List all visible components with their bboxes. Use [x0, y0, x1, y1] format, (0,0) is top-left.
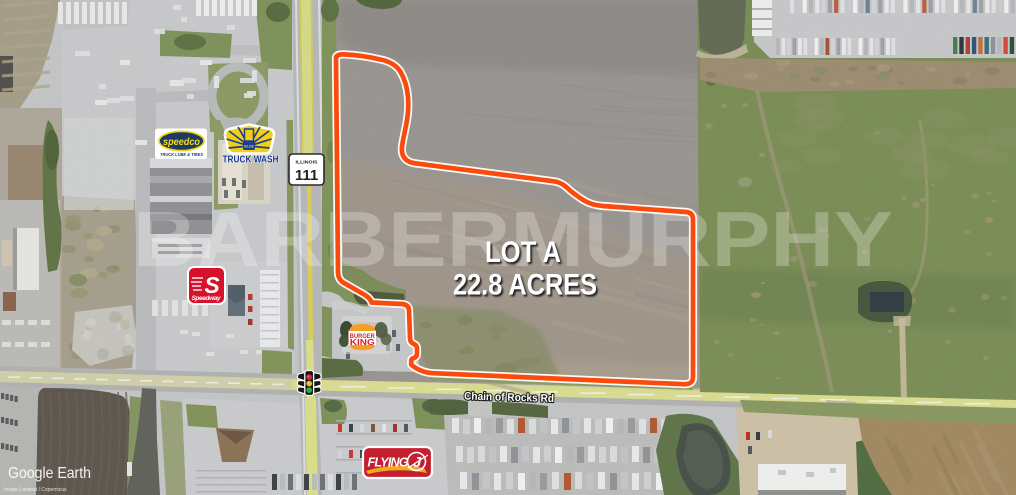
svg-text:speedco: speedco [163, 136, 201, 148]
svg-text:22.8 ACRES: 22.8 ACRES [453, 269, 597, 302]
svg-text:BLUE: BLUE [244, 145, 254, 149]
svg-text:TRUCK WASH: TRUCK WASH [223, 154, 279, 166]
svg-text:TRUCK LUBE & TIRES: TRUCK LUBE & TIRES [160, 152, 203, 157]
svg-text:FLYING: FLYING [368, 456, 409, 470]
svg-text:LOT A: LOT A [485, 236, 561, 269]
svg-text:Chain of Rocks Rd: Chain of Rocks Rd [464, 391, 554, 406]
svg-text:Speedway: Speedway [192, 295, 221, 302]
svg-text:Image Landsat / Copernicus: Image Landsat / Copernicus [4, 487, 67, 493]
svg-text:111: 111 [295, 167, 318, 184]
svg-text:Google Earth: Google Earth [8, 465, 91, 482]
svg-text:ILLINOIS: ILLINOIS [296, 160, 319, 166]
svg-text:KING: KING [350, 338, 375, 347]
